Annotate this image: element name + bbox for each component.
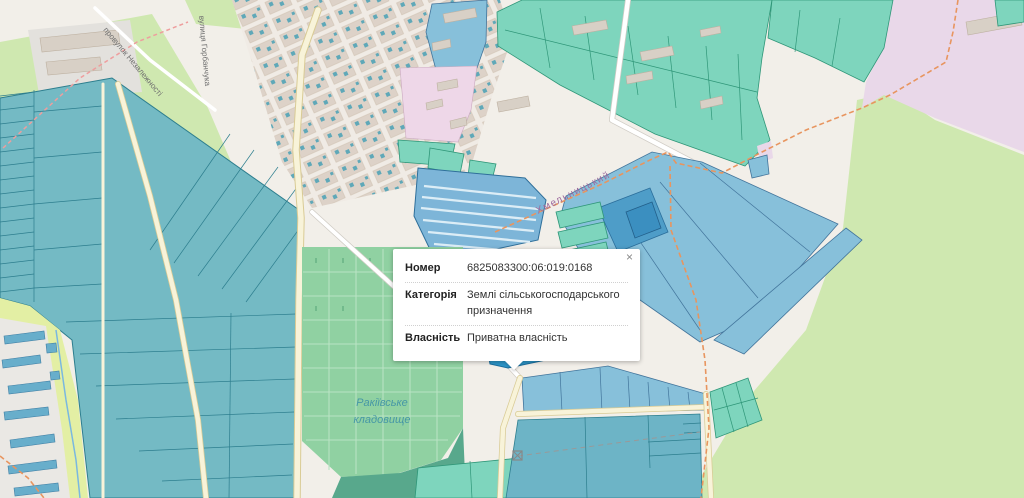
field-value-number: 6825083300:06:019:0168 (467, 261, 628, 277)
popup-close-button[interactable]: × (626, 251, 633, 263)
field-label-ownership: Власність (405, 331, 467, 347)
field-row-ownership: Власність Приватна власність (405, 325, 628, 352)
field-label-category: Категорія (405, 288, 467, 320)
field-row-category: Категорія Землі сільськогосподарського п… (405, 282, 628, 325)
field-value-category: Землі сільськогосподарського призначення (467, 288, 628, 320)
field-value-ownership: Приватна власність (467, 331, 628, 347)
parcel-info-popup: × Номер 6825083300:06:019:0168 Категорія… (393, 249, 640, 361)
field-row-number: Номер 6825083300:06:019:0168 (405, 256, 628, 282)
cemetery-label-line2: кладовище (353, 414, 410, 426)
field-label-number: Номер (405, 261, 467, 277)
cadastral-map-viewport: провулок Незалежності вулиця Горбанчука … (0, 0, 1024, 498)
cemetery-label-line1: Ракіївське (356, 397, 408, 409)
popup-pointer (505, 361, 523, 370)
